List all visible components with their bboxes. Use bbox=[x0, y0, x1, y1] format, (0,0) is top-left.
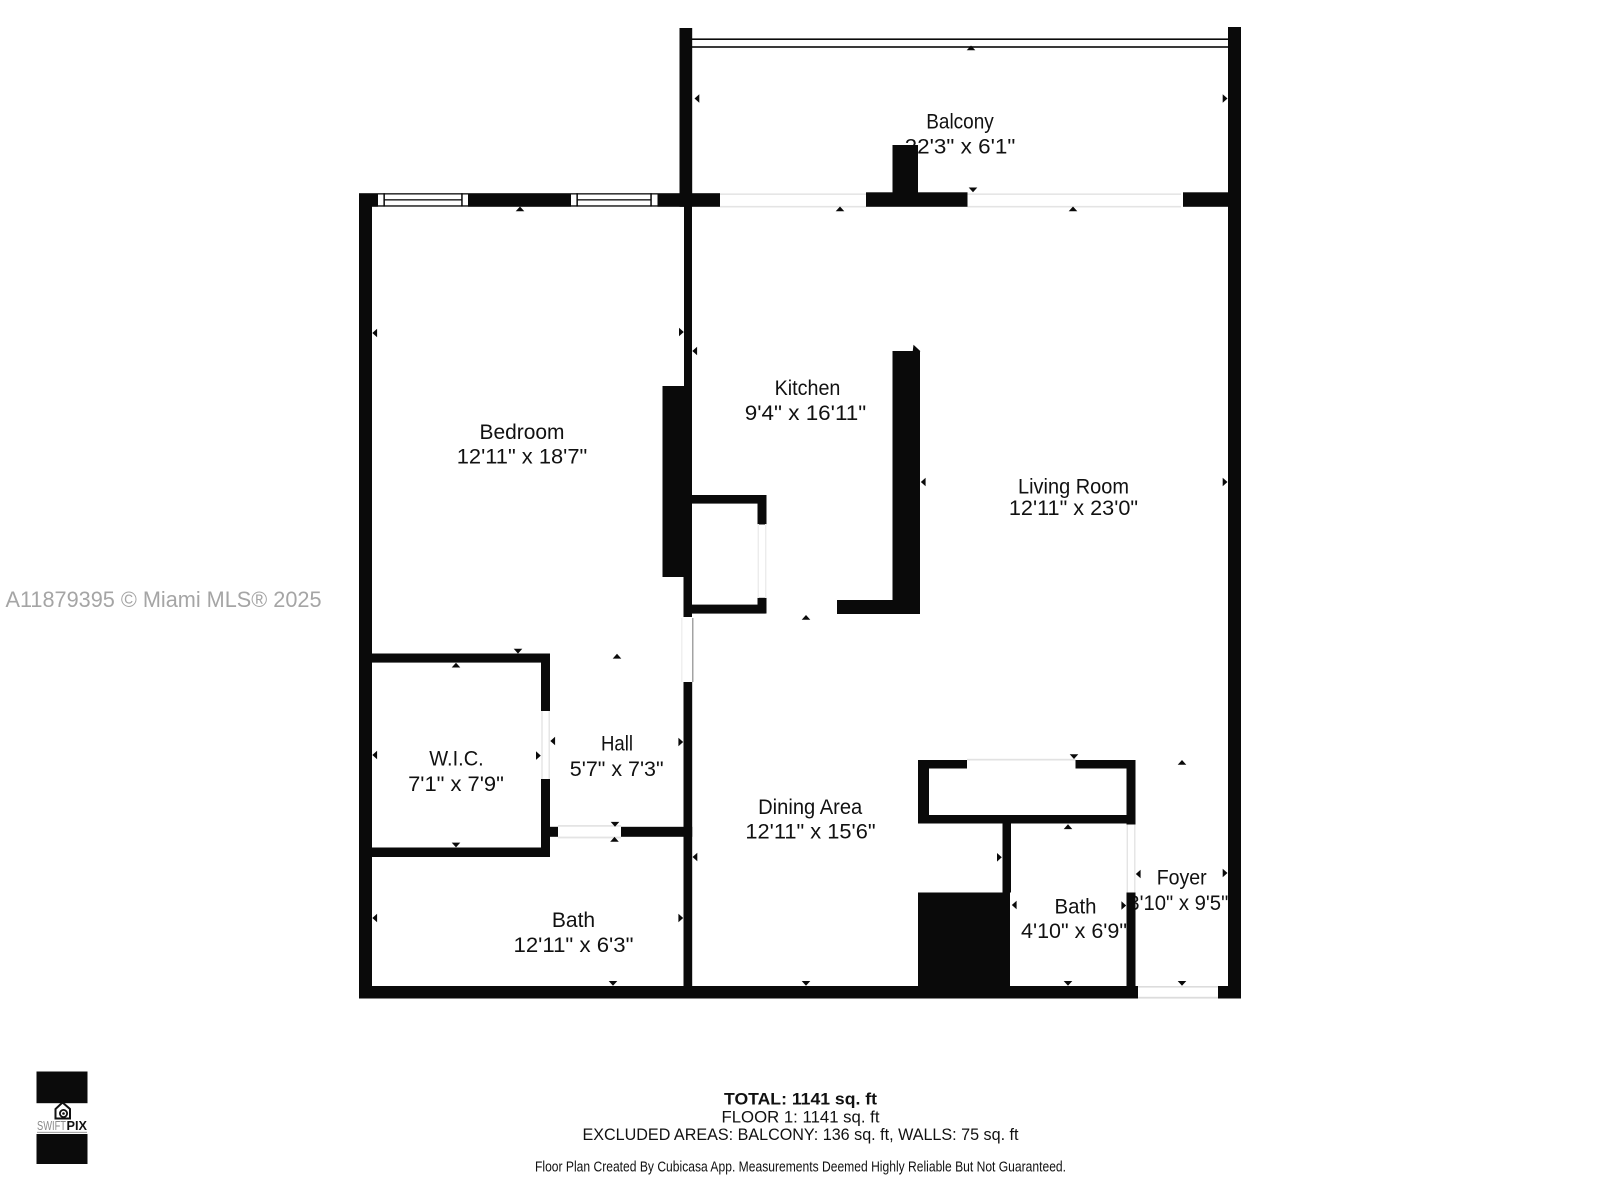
svg-text:Bath: Bath bbox=[552, 909, 595, 932]
svg-text:W.I.C.: W.I.C. bbox=[429, 747, 484, 770]
svg-text:12'11" x 18'7": 12'11" x 18'7" bbox=[457, 445, 588, 468]
svg-text:EXCLUDED AREAS: BALCONY: 136 s: EXCLUDED AREAS: BALCONY: 136 sq. ft, WAL… bbox=[583, 1126, 1019, 1144]
svg-text:A11879395 © Miami MLS® 2025: A11879395 © Miami MLS® 2025 bbox=[6, 587, 322, 612]
svg-text:9'4" x 16'11": 9'4" x 16'11" bbox=[745, 402, 867, 425]
svg-text:Dining Area: Dining Area bbox=[758, 796, 862, 819]
svg-text:12'11" x 6'3": 12'11" x 6'3" bbox=[514, 934, 634, 957]
svg-text:12'11" x 23'0": 12'11" x 23'0" bbox=[1009, 497, 1138, 520]
svg-text:4'10" x 6'9": 4'10" x 6'9" bbox=[1021, 920, 1127, 943]
svg-text:Living Room: Living Room bbox=[1018, 476, 1129, 499]
svg-text:Hall: Hall bbox=[601, 733, 633, 756]
svg-text:PIX: PIX bbox=[67, 1118, 88, 1133]
svg-text:Bedroom: Bedroom bbox=[480, 421, 565, 444]
svg-text:SWIFT: SWIFT bbox=[37, 1118, 66, 1133]
svg-text:7'1" x 7'9": 7'1" x 7'9" bbox=[408, 773, 504, 796]
svg-text:5'7" x 7'3": 5'7" x 7'3" bbox=[570, 758, 664, 781]
svg-text:Balcony: Balcony bbox=[926, 111, 994, 134]
svg-text:Floor Plan Created By Cubicasa: Floor Plan Created By Cubicasa App. Meas… bbox=[535, 1160, 1066, 1176]
svg-text:Kitchen: Kitchen bbox=[775, 377, 841, 400]
svg-text:TOTAL: 1141 sq. ft: TOTAL: 1141 sq. ft bbox=[724, 1091, 878, 1109]
svg-text:Foyer: Foyer bbox=[1157, 867, 1207, 890]
svg-text:12'11" x 15'6": 12'11" x 15'6" bbox=[745, 820, 875, 843]
svg-text:FLOOR 1: 1141 sq. ft: FLOOR 1: 1141 sq. ft bbox=[722, 1109, 880, 1127]
svg-text:22'3" x 6'1": 22'3" x 6'1" bbox=[905, 136, 1016, 159]
svg-text:Bath: Bath bbox=[1055, 895, 1097, 918]
svg-text:3'10" x 9'5": 3'10" x 9'5" bbox=[1128, 892, 1228, 915]
